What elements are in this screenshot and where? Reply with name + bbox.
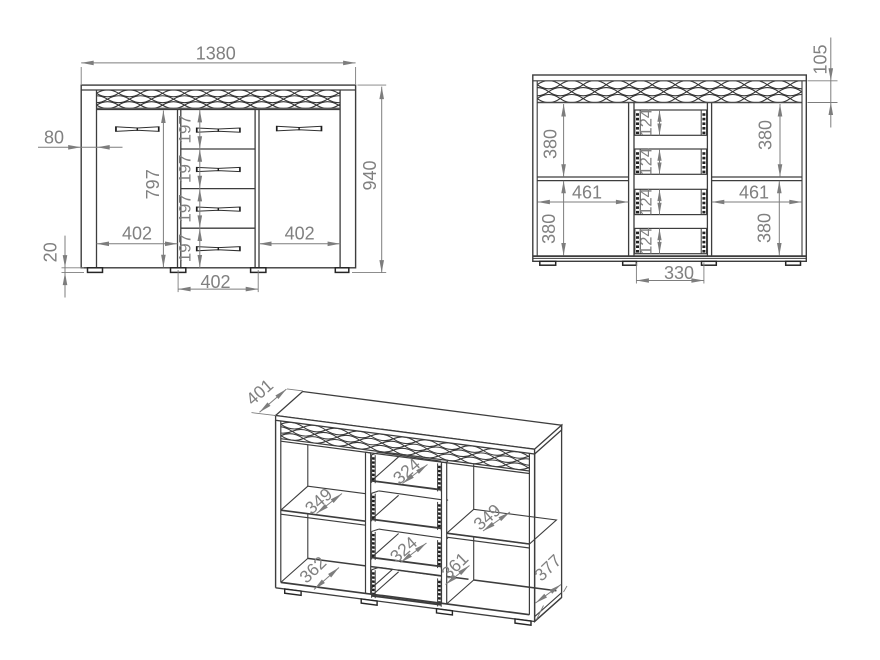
svg-text:402: 402 (285, 224, 315, 244)
svg-text:402: 402 (122, 224, 152, 244)
svg-text:402: 402 (200, 272, 230, 292)
svg-text:940: 940 (360, 160, 380, 190)
svg-text:197: 197 (176, 115, 195, 143)
svg-text:197: 197 (176, 234, 195, 262)
svg-text:380: 380 (541, 129, 561, 159)
svg-text:461: 461 (739, 182, 769, 202)
svg-text:197: 197 (176, 155, 195, 183)
svg-text:380: 380 (539, 214, 559, 244)
svg-text:105: 105 (810, 44, 830, 74)
svg-text:797: 797 (143, 169, 163, 199)
svg-text:124: 124 (638, 148, 656, 176)
svg-text:1380: 1380 (196, 44, 236, 64)
svg-text:380: 380 (755, 120, 775, 150)
svg-text:124: 124 (638, 188, 656, 216)
svg-text:124: 124 (638, 227, 656, 255)
svg-text:80: 80 (44, 128, 64, 148)
svg-text:197: 197 (176, 194, 195, 222)
svg-text:461: 461 (572, 182, 602, 202)
svg-text:20: 20 (41, 242, 61, 262)
svg-text:330: 330 (664, 263, 694, 283)
svg-text:124: 124 (638, 109, 656, 137)
svg-text:380: 380 (755, 213, 775, 243)
